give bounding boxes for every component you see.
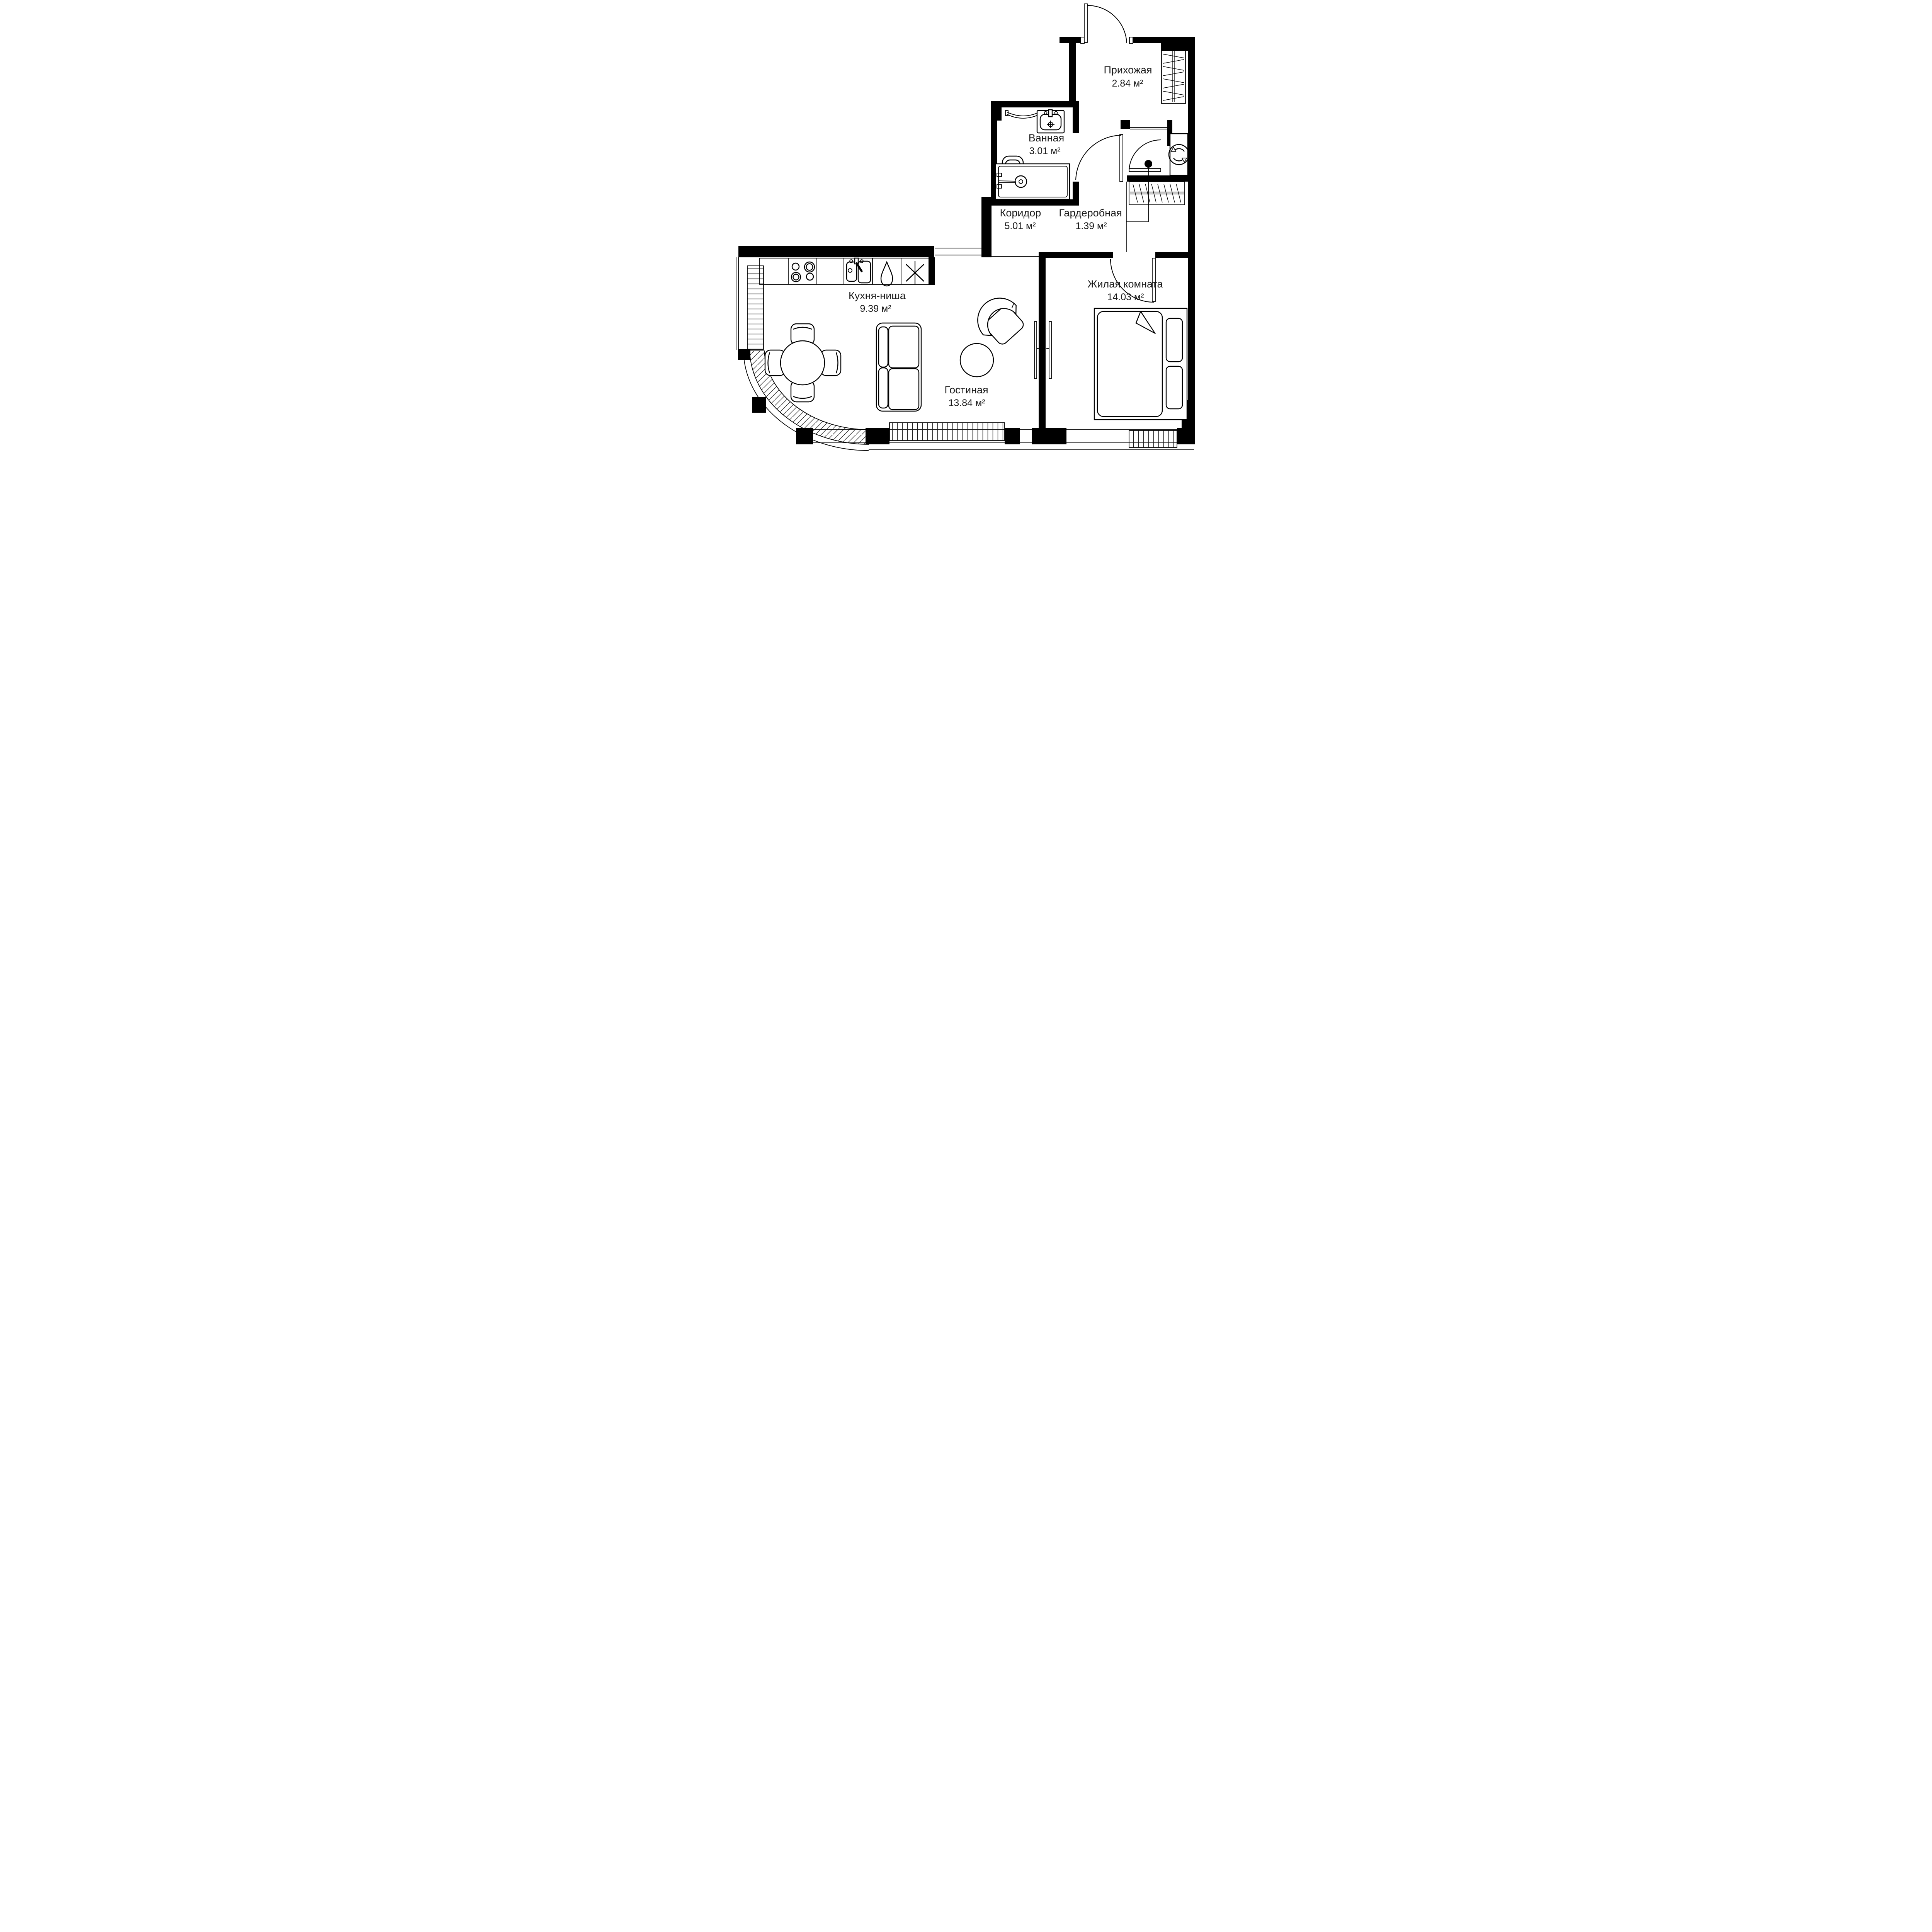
room-label-kitchen-niche: Кухня-ниша 9.39 м² <box>849 290 906 314</box>
left-vertical-radiator <box>747 266 764 349</box>
hallway-corridor-door <box>1129 140 1161 172</box>
armchair <box>969 289 1030 350</box>
room-area: 5.01 м² <box>1004 221 1036 231</box>
bedroom-radiator <box>1129 430 1177 447</box>
door-pivot-dot <box>1145 160 1152 168</box>
sofa <box>876 323 921 411</box>
room-label-bathroom: Ванная 3.01 м² <box>1029 132 1064 156</box>
room-label-wardrobe: Гардеробная 1.39 м² <box>1059 207 1122 231</box>
room-name: Ванная <box>1029 132 1064 144</box>
room-name: Кухня-ниша <box>849 290 906 301</box>
double-bed <box>1094 308 1187 420</box>
room-label-living: Гостиная 13.84 м² <box>944 384 988 408</box>
bathroom-door <box>1076 134 1123 182</box>
room-area: 1.39 м² <box>1075 221 1107 231</box>
fridge-snowflake-icon <box>906 261 924 284</box>
room-area: 13.84 м² <box>948 398 985 408</box>
room-area: 2.84 м² <box>1112 78 1143 89</box>
dining-table <box>781 341 825 385</box>
pillow <box>1166 366 1182 409</box>
pillow <box>1166 318 1182 362</box>
dishwasher-droplet-icon <box>881 262 893 286</box>
bathtub <box>995 164 1070 199</box>
room-label-hallway: Прихожая 2.84 м² <box>1104 64 1152 89</box>
room-name: Жилая комната <box>1087 278 1163 290</box>
towel-rail <box>1005 111 1041 118</box>
washing-machine <box>1169 134 1189 175</box>
living-room-radiator <box>889 423 1005 440</box>
floor-plan-page: Прихожая 2.84 м² Ванная 3.01 м² Коридор … <box>0 0 1932 454</box>
room-name: Гардеробная <box>1059 207 1122 219</box>
room-name: Прихожая <box>1104 64 1152 76</box>
cooktop-icon <box>791 262 815 282</box>
coat-rack <box>1162 49 1185 104</box>
room-area: 9.39 м² <box>860 303 891 314</box>
kitchen-counter <box>760 258 929 286</box>
blanket <box>1097 311 1162 417</box>
room-label-corridor: Коридор 5.01 м² <box>1000 207 1041 231</box>
kitchen-sink-icon <box>847 258 871 283</box>
room-area: 14.03 м² <box>1107 292 1144 303</box>
room-name: Гостиная <box>944 384 988 396</box>
floor-plan: Прихожая 2.84 м² Ванная 3.01 м² Коридор … <box>734 0 1198 454</box>
room-name: Коридор <box>1000 207 1041 219</box>
room-area: 3.01 м² <box>1029 146 1060 156</box>
room-label-bedroom: Жилая комната 14.03 м² <box>1087 278 1163 303</box>
coffee-table <box>960 344 993 377</box>
wash-basin <box>1037 110 1064 133</box>
entrance-door <box>1081 4 1133 44</box>
